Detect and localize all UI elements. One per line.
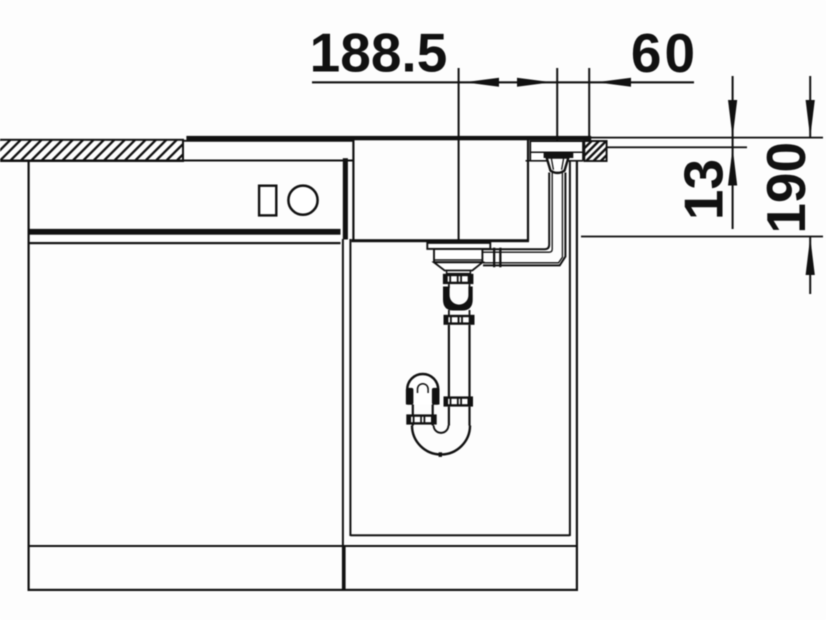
svg-text:188.5: 188.5: [310, 22, 448, 84]
svg-text:190: 190: [755, 142, 817, 234]
svg-text:60: 60: [631, 22, 698, 84]
svg-text:13: 13: [673, 159, 735, 220]
